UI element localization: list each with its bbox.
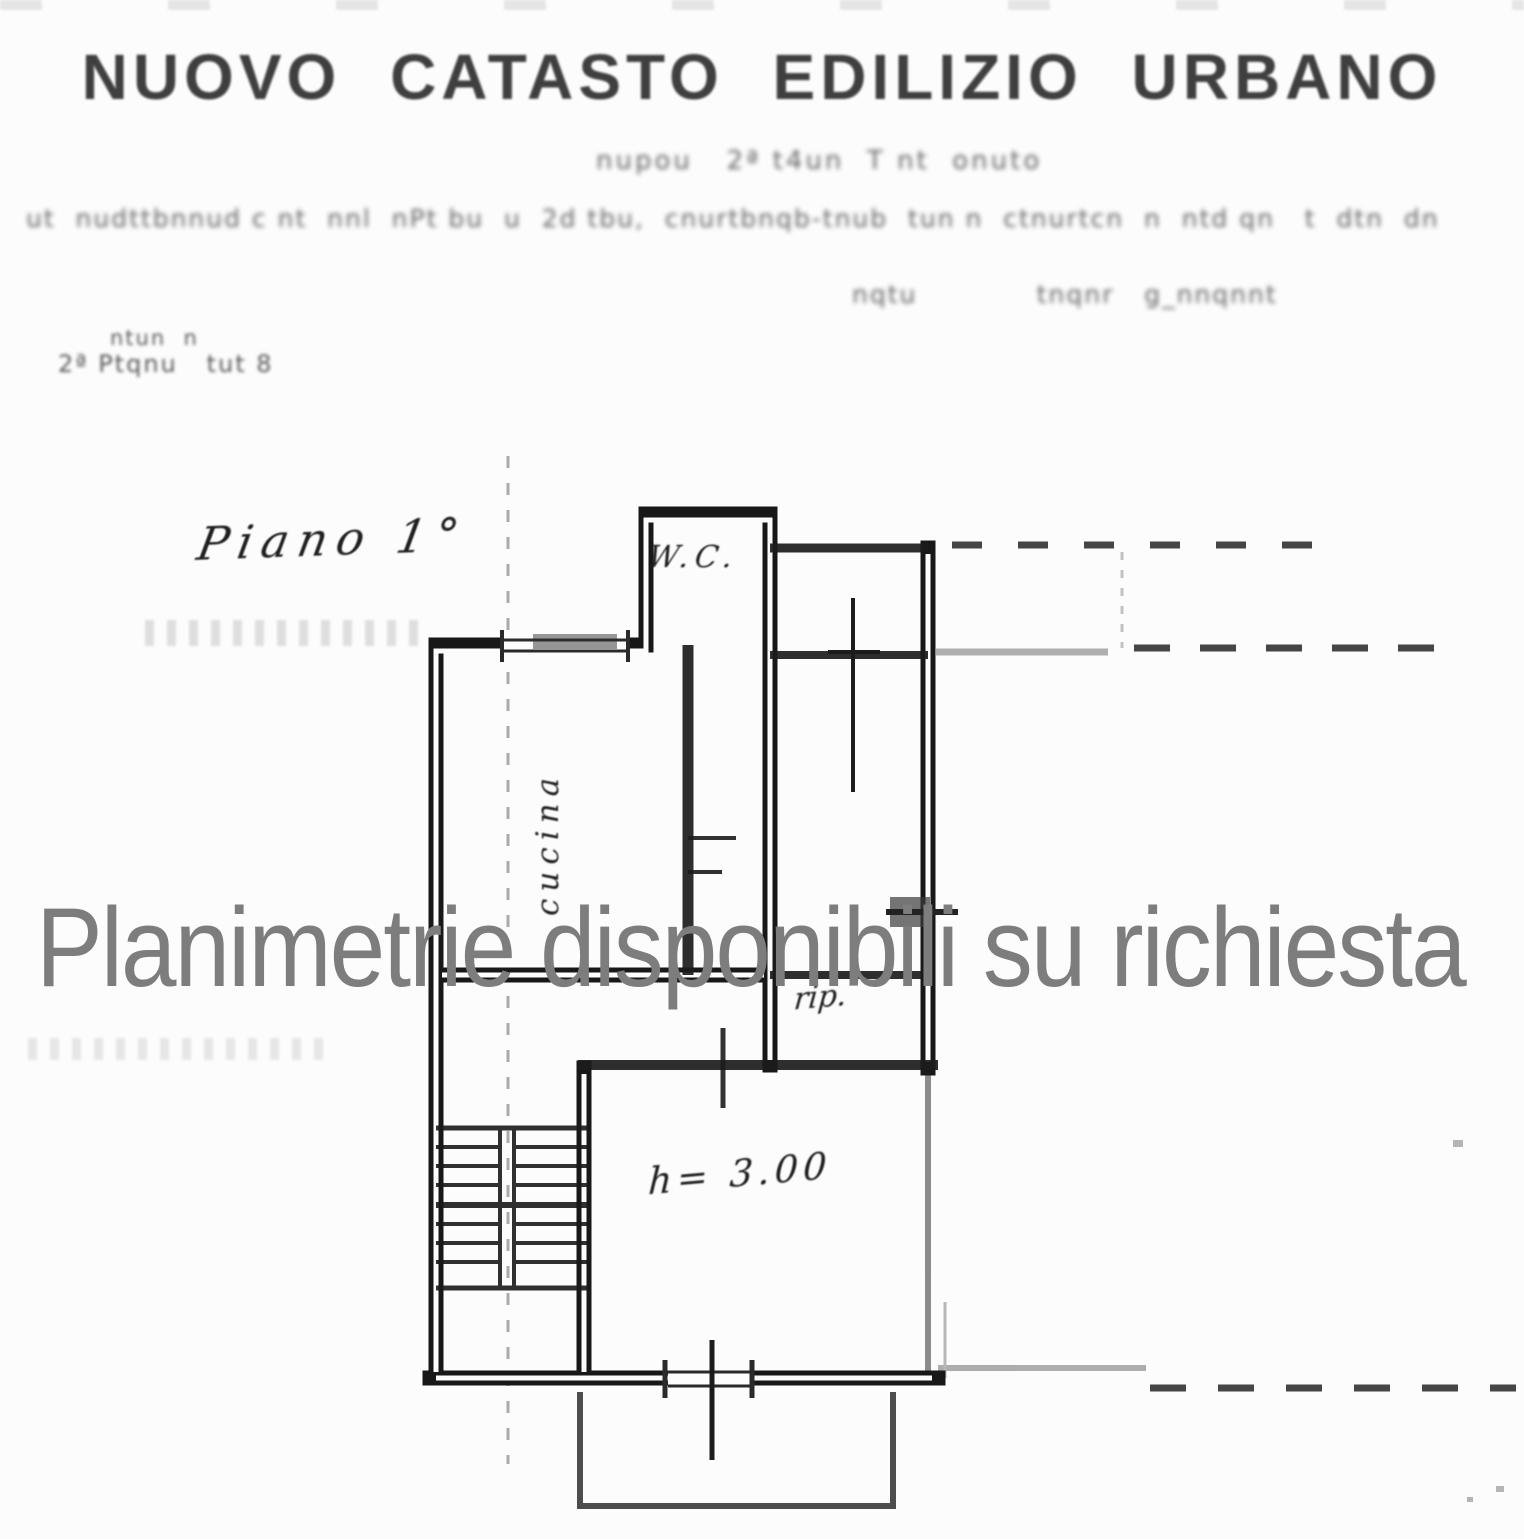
scanned-cadastral-plan-page: NUOVO CATASTO EDILIZIO URBANO nupou 2ª t…: [0, 0, 1524, 1539]
watermark-overlay: Planimetrie disponibili su richiesta: [36, 884, 1465, 1013]
staircase: [436, 1128, 590, 1288]
faint-wall-extensions: [928, 652, 1146, 1378]
floor-level-label: Piano 1°: [193, 507, 472, 571]
balcony: [580, 1392, 893, 1506]
room-label-wc: W.C.: [645, 540, 742, 575]
floor-plan-drawing: [0, 0, 1524, 1539]
scan-specks: [1453, 1140, 1504, 1502]
